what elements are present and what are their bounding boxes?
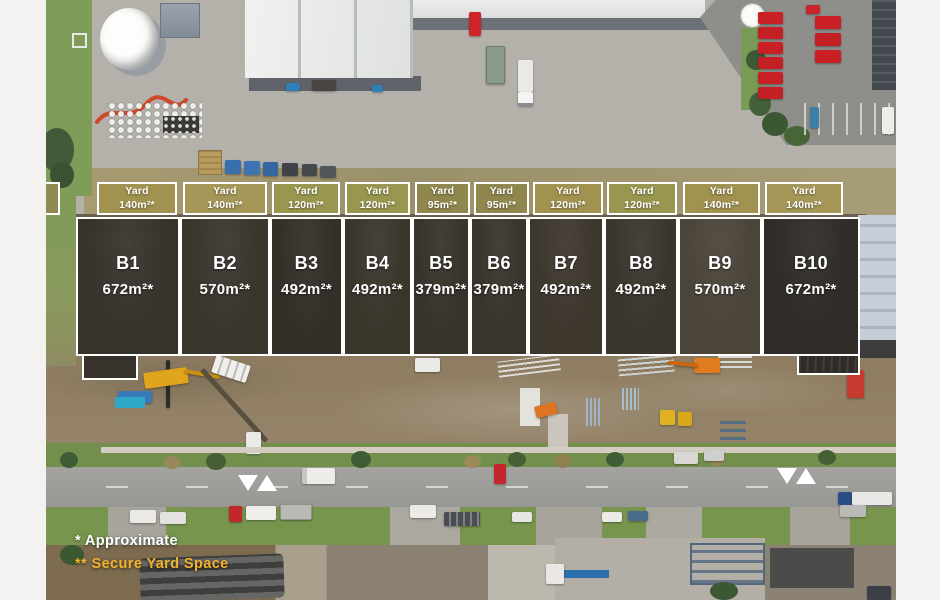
yard-title: Yard (366, 185, 390, 198)
white-ute (130, 510, 156, 523)
unit-id: B2 (213, 253, 237, 274)
yard-box-6: Yard 95m²* (474, 182, 529, 215)
storage-tank (100, 8, 158, 70)
yard-box-4: Yard 120m²* (345, 182, 410, 215)
red-truck (758, 12, 783, 24)
footpath (101, 447, 896, 453)
white-plant (546, 564, 564, 584)
yard-area: 120m²* (288, 199, 324, 212)
entry-marker-triangle-up-icon (796, 468, 816, 484)
yard-area: 120m²* (550, 199, 586, 212)
verge-bush (464, 455, 481, 468)
green-truck (486, 46, 505, 84)
red-truck (815, 33, 841, 46)
grass-strip-left-mid (46, 196, 76, 366)
dock-crates (312, 80, 336, 91)
canopy-shadow (413, 17, 711, 30)
unit-id: B10 (794, 253, 828, 274)
plot-b1-notch (82, 352, 138, 380)
unit-area: 570m²* (200, 281, 251, 298)
unit-plot-b1: B1 672m²* (76, 217, 180, 356)
white-box-truck (302, 468, 335, 484)
unit-plot-b8: B8 492m²* (604, 217, 678, 356)
unit-area: 672m²* (103, 281, 154, 298)
red-truck (815, 16, 841, 29)
ground-marker-square (72, 33, 87, 48)
dark-asphalt-pad (770, 548, 854, 588)
yard-box-8: Yard 120m²* (607, 182, 677, 215)
white-car (512, 512, 532, 522)
red-truck (815, 50, 841, 63)
yard-box-5: Yard 95m²* (415, 182, 470, 215)
white-car (882, 107, 894, 134)
aerial-site-marketing-image: Yard 140m²* Yard 140m²* Yard 120m²* Yard… (0, 0, 940, 600)
footnote-secure-yard-space: ** Secure Yard Space (75, 556, 229, 572)
footnote-approximate: * Approximate (75, 533, 178, 549)
yard-box-9: Yard 140m²* (683, 182, 760, 215)
red-car (469, 12, 481, 36)
yard-box-3: Yard 120m²* (272, 182, 340, 215)
wood-crate (198, 150, 222, 175)
pump-shed-roof (160, 3, 200, 38)
unit-id: B4 (366, 253, 390, 274)
truck-cab-blue (838, 492, 852, 505)
verge-tree (351, 451, 371, 468)
yard-area: 140m²* (786, 199, 822, 212)
ribbed-roof-shadow (858, 340, 896, 358)
red-truck (758, 27, 783, 39)
red-car (806, 5, 820, 14)
unit-area: 672m²* (786, 281, 837, 298)
dark-bin (282, 163, 298, 176)
yard-title: Yard (710, 185, 734, 198)
grey-car (840, 505, 866, 517)
verge-tree (508, 452, 526, 467)
unit-area: 379m²* (474, 281, 525, 298)
white-car (704, 450, 724, 461)
red-car (229, 506, 242, 522)
white-car (410, 505, 436, 518)
unit-area: 492m²* (352, 281, 403, 298)
verge-tree (60, 452, 78, 468)
unit-id: B6 (487, 253, 511, 274)
steel-bundle (718, 356, 752, 368)
aerial-photo: Yard 140m²* Yard 140m²* Yard 120m²* Yard… (46, 0, 896, 600)
dark-truck (444, 512, 480, 526)
unit-area: 492m²* (541, 281, 592, 298)
yard-box-1: Yard 140m²* (97, 182, 177, 215)
yard-area: 140m²* (119, 199, 155, 212)
red-car (494, 464, 506, 484)
concrete-pad-grey (548, 414, 568, 448)
white-ute (602, 512, 622, 522)
unit-id: B3 (295, 253, 319, 274)
verge-tree (206, 453, 226, 470)
pipe-bundle-blue (622, 388, 639, 410)
yard-title: Yard (125, 185, 149, 198)
white-ute (415, 358, 440, 372)
pipe-bundle-blue (586, 398, 600, 426)
unit-plot-b2: B2 570m²* (180, 217, 270, 356)
unit-id: B7 (554, 253, 578, 274)
yard-title: Yard (213, 185, 237, 198)
construction-dirt-zone (46, 352, 896, 447)
roller-door-blue (372, 85, 383, 92)
white-van (246, 506, 276, 520)
dark-building (872, 0, 896, 90)
blue-bin (263, 162, 278, 176)
yard-area: 140m²* (704, 199, 740, 212)
yard-box-10: Yard 140m²* (765, 182, 843, 215)
dark-car (867, 586, 891, 600)
truck-trailer-white (852, 492, 892, 505)
unit-area: 379m²* (416, 281, 467, 298)
roller-door-blue (286, 83, 300, 91)
red-truck (758, 72, 783, 84)
yellow-plant (660, 410, 675, 425)
unit-plot-b5: B5 379m²* (412, 217, 470, 356)
unit-area: 570m²* (695, 281, 746, 298)
red-truck (758, 57, 783, 69)
yard-area: 120m²* (624, 199, 660, 212)
yard-area: 140m²* (207, 199, 243, 212)
unit-area: 492m²* (281, 281, 332, 298)
red-truck (758, 87, 783, 99)
unit-plot-b3: B3 492m²* (270, 217, 343, 356)
red-truck (758, 42, 783, 54)
white-ute (160, 512, 186, 524)
blue-car (810, 107, 819, 128)
steel-frame-blue (690, 543, 765, 585)
yard-title: Yard (556, 185, 580, 198)
verge-bush (554, 454, 571, 468)
unit-plot-b10: B10 672m²* (762, 217, 860, 356)
yard-box-fragment (46, 182, 60, 215)
yard-title: Yard (630, 185, 654, 198)
unit-id: B5 (429, 253, 453, 274)
grey-van (280, 504, 312, 520)
unit-plot-b7: B7 492m²* (528, 217, 604, 356)
silver-van (674, 452, 698, 464)
road-centerline (106, 486, 886, 488)
unit-id: B8 (629, 253, 653, 274)
blue-racks (720, 418, 746, 440)
yard-box-2: Yard 140m²* (183, 182, 267, 215)
unit-plot-b6: B6 379m²* (470, 217, 528, 356)
pallet-dark (163, 116, 199, 133)
yellow-plant (678, 412, 692, 426)
verge-tree (818, 450, 836, 465)
yard-title: Yard (294, 185, 318, 198)
unit-id: B9 (708, 253, 732, 274)
entry-marker-triangle-up-icon (257, 475, 277, 491)
ribbed-warehouse-roof (858, 215, 896, 343)
semi-trailer (518, 60, 533, 92)
canopy-roof (413, 0, 705, 18)
verge-tree (606, 452, 624, 467)
bottom-bush (710, 582, 738, 600)
blue-bin (244, 161, 260, 175)
dark-bin (320, 166, 336, 178)
blue-bin (225, 160, 241, 174)
entry-marker-triangle-down-icon (777, 468, 797, 484)
unit-id: B1 (116, 253, 140, 274)
blue-pool (115, 397, 145, 408)
semi-cab (518, 92, 533, 106)
unit-plot-b9: B9 570m²* (678, 217, 762, 356)
yard-area: 120m²* (360, 199, 396, 212)
unit-plot-b4: B4 492m²* (343, 217, 412, 356)
yard-title: Yard (431, 185, 455, 198)
entry-marker-triangle-down-icon (238, 475, 258, 491)
yard-box-7: Yard 120m²* (533, 182, 603, 215)
yard-title: Yard (490, 185, 514, 198)
yard-area: 95m²* (487, 199, 517, 212)
yard-title: Yard (792, 185, 816, 198)
verge-bush (164, 456, 180, 469)
unit-area: 492m²* (616, 281, 667, 298)
blue-ute (628, 511, 648, 521)
dark-bin (302, 164, 317, 176)
warehouse-roof (245, 0, 413, 78)
yard-area: 95m²* (428, 199, 458, 212)
